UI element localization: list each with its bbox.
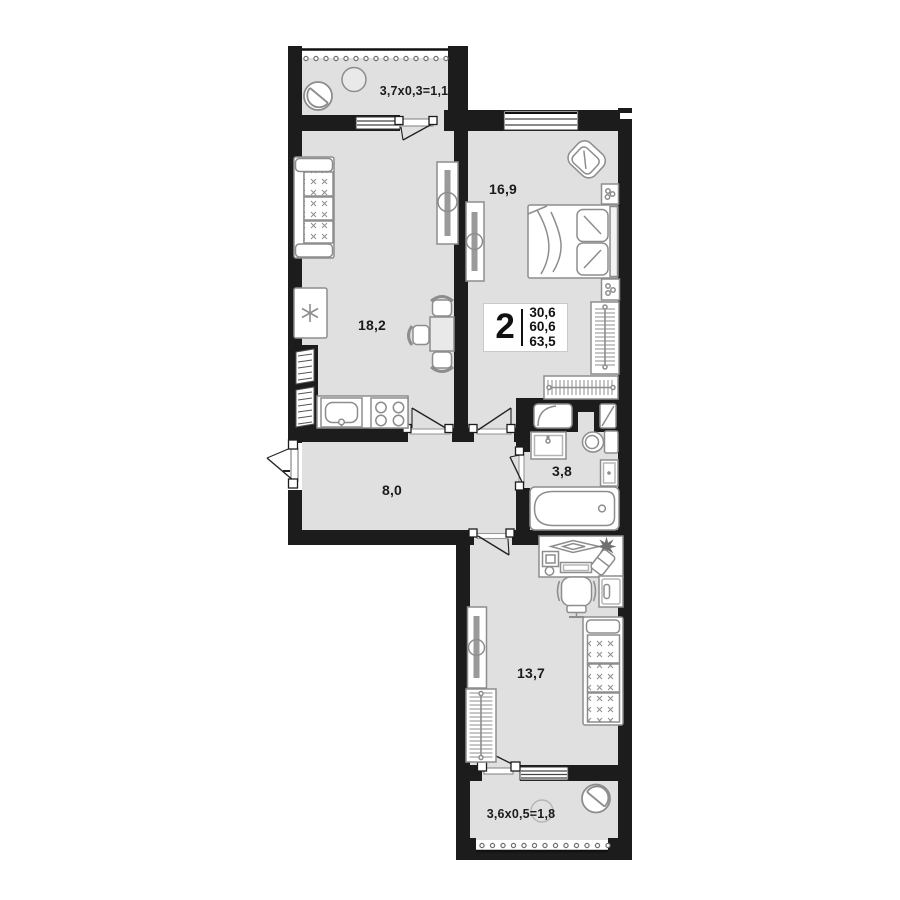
keyboard [561,563,592,573]
stove [371,398,408,428]
label-hallway: 8,0 [382,482,402,498]
monitor [543,552,559,567]
rooms-count: 2 [495,309,514,344]
duct-right [600,404,616,428]
mug [545,567,553,575]
kitchen-counter [317,396,408,428]
total-area: 63,5 [529,335,555,350]
sink [321,398,362,428]
toilet [583,431,619,453]
label-bedroom2: 13,7 [517,665,545,681]
duct-left [534,404,572,428]
double-bed [528,205,618,278]
balcony-chair-bottom [582,785,610,813]
mirror-wardrobe [437,162,458,244]
bedroom2-window [520,767,568,780]
apartment-info-plate: 2 30,6 60,6 63,5 [483,303,568,352]
closet-hangers-bottom [544,376,618,399]
label-balcony-top: 3,7x0,3=1,1 [380,84,449,98]
label-kitchen-living: 18,2 [358,317,386,333]
sofa [294,157,334,258]
label-bedroom: 16,9 [489,181,517,197]
balcony-top-glazing [302,48,448,61]
bathtub [530,487,619,530]
bedside-cabinet [599,576,623,607]
label-balcony-bottom: 3,6x0,5=1,8 [487,807,556,821]
balcony-chair-top [304,82,332,110]
mirror-wardrobe-bedroom [466,202,484,281]
fridge [294,288,327,338]
balcony-bottom-glazing [476,840,610,852]
single-bed [583,617,623,725]
bedroom-window [504,111,578,130]
floor-plan-drawing [0,0,900,900]
balcony-table [342,68,366,92]
kitchen-window [356,117,400,129]
floor-plan: 3,7x0,3=1,1 16,9 18,2 8,0 3,8 13,7 3,6x0… [0,0,900,900]
living-area: 30,6 [529,306,555,321]
nightstand-top [602,184,619,204]
plate-divider [521,309,524,346]
desk [539,536,623,577]
nightstand-bottom [602,279,620,300]
label-bathroom: 3,8 [552,463,572,479]
wall-vent [620,113,632,119]
washbasin [531,432,566,459]
usable-area: 60,6 [529,320,555,335]
mirror-wardrobe-bedroom2 [468,607,487,688]
closet-hangers-right [591,302,619,374]
floor-hallway [300,440,516,532]
entrance-door [267,440,298,488]
closet-hangers-left [466,689,496,762]
wall-cabinet [601,460,619,486]
